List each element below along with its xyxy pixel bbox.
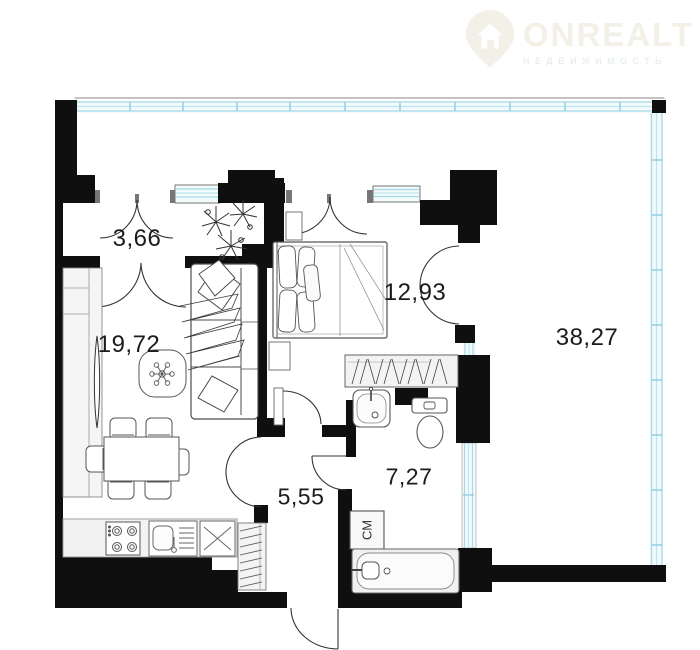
floorplan-page: СМ 3,66 19,72 12,93 38,27 5,55 7,27 ONRE… (0, 0, 700, 650)
kitchen-counter (63, 519, 237, 557)
room-area-label-bedroom: 12,93 (384, 279, 447, 307)
room-area-label-hallway: 3,66 (113, 225, 162, 253)
room-area-label-living: 19,72 (98, 331, 161, 359)
nightstand (286, 212, 302, 240)
bed (273, 242, 387, 338)
map-pin-house-icon (464, 8, 516, 70)
entrance-door (291, 608, 338, 649)
bedroom-window (373, 186, 420, 202)
brand-name: ONREALT (523, 18, 694, 51)
room-area-label-terrace: 38,27 (556, 324, 619, 352)
brand-logo: ONREALT НЕДВИЖИМОСТЬ (464, 8, 694, 70)
bathtub-icon (352, 549, 459, 593)
room-area-label-bathroom: 7,27 (386, 464, 433, 491)
stove-icon (106, 522, 140, 555)
living-room-door (97, 263, 186, 307)
entrance-wardrobe (238, 523, 266, 590)
bedroom-loggia-door (292, 197, 367, 234)
bedroom-corridor-door (274, 388, 321, 425)
washing-machine: СМ (350, 511, 384, 549)
sofa (180, 260, 258, 419)
toilet-icon (412, 398, 447, 448)
nightstand (269, 342, 290, 370)
hallway-window (175, 185, 220, 203)
kitchen-sink-icon (149, 521, 197, 556)
bedroom-closet (345, 355, 458, 387)
fridge-slot-icon (200, 521, 235, 556)
washing-machine-label: СМ (360, 520, 375, 540)
bathroom-sink-icon (353, 387, 390, 427)
brand-tagline: НЕДВИЖИМОСТЬ (523, 56, 667, 66)
dining-table (104, 437, 179, 481)
corridor-living-door (226, 437, 261, 507)
room-area-label-corridor: 5,55 (278, 484, 325, 511)
